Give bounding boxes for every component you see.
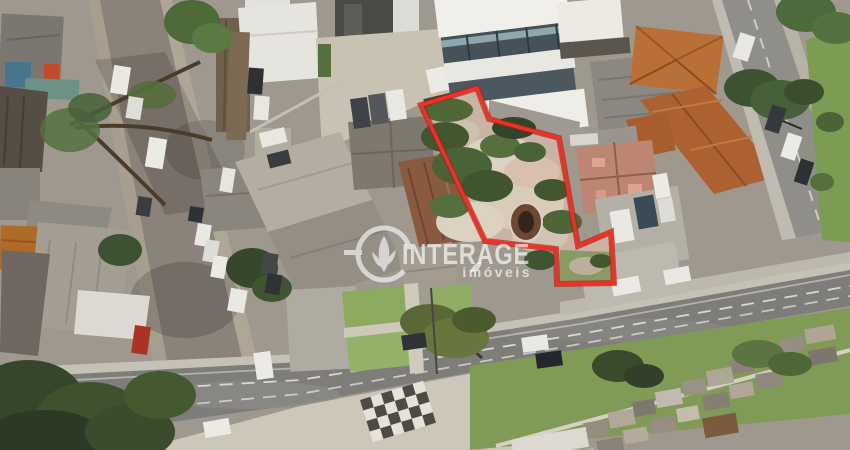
aerial-photo-frame: INTERAGE imóveis — [0, 0, 850, 450]
watermark-descriptor-text: imóveis — [462, 264, 532, 280]
aerial-photo: INTERAGE imóveis — [0, 0, 850, 450]
